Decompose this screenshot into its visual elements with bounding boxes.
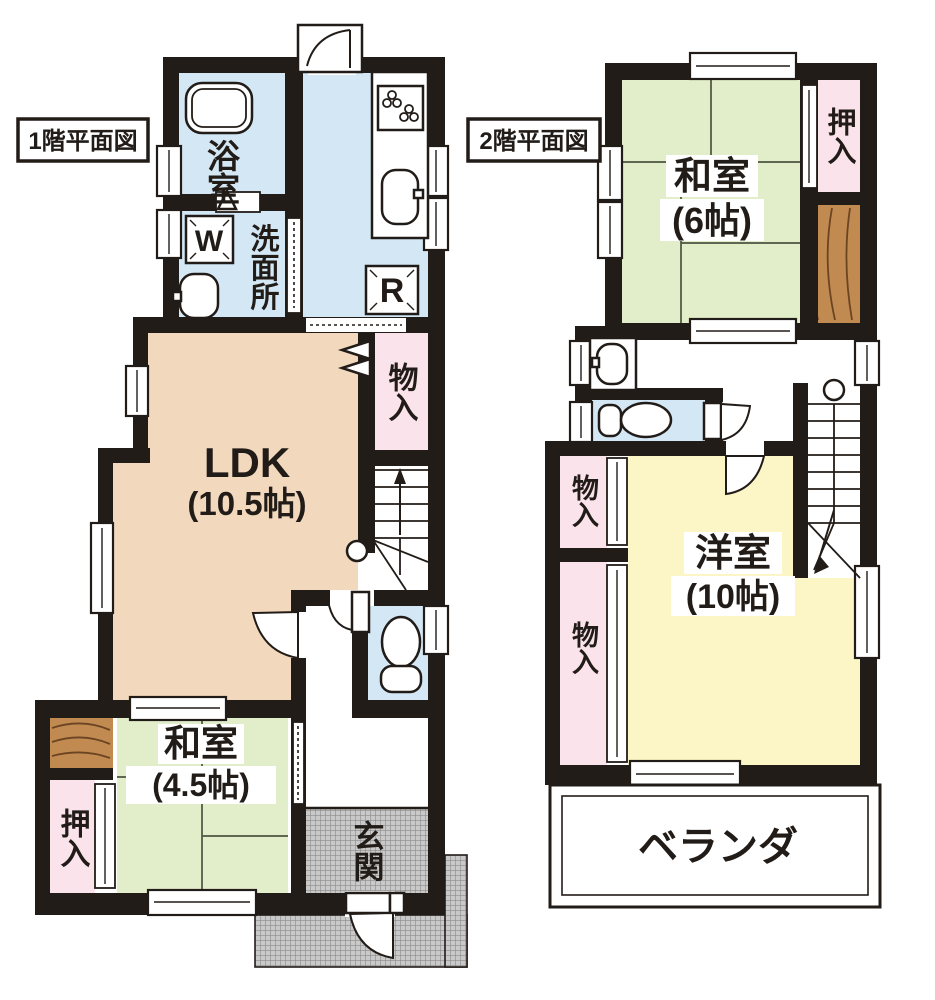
label-oshiire-1f: 押入: [56, 808, 91, 868]
bathtub-icon: [186, 83, 252, 133]
toilet-door-2f: [704, 403, 721, 439]
label-washitsu-1f: 和室: [164, 722, 238, 764]
label-storage-1f: 物入: [384, 362, 419, 422]
label-ldk-size: (10.5帖): [187, 485, 306, 522]
stairs-2f: [808, 380, 860, 578]
label-veranda: ベランダ: [638, 825, 798, 869]
toilet-icon-1f: [381, 617, 421, 692]
floor2-plan: 2階平面図 和室 (6帖) 押入 物入 物入 洋室 (10帖) ベランダ: [468, 53, 880, 907]
toilet-icon-2f: [599, 403, 671, 437]
label-oshiire-2f: 押入: [823, 107, 857, 165]
label-washitsu-1f-size: (4.5帖): [152, 767, 250, 803]
washbasin-2f: [590, 338, 636, 390]
label-youshitsu: 洋室: [695, 532, 771, 575]
label-washroom: 洗面所: [246, 223, 280, 311]
front-door: [346, 893, 390, 913]
floor2-title: 2階平面図: [479, 128, 588, 155]
label-genkan: 玄関: [349, 820, 384, 882]
label-youshitsu-size: (10帖): [686, 578, 780, 616]
floorplan-page: 1階平面図 浴室 洗面所 W R LDK (10.5帖) 物入 和室 (4.5帖…: [0, 0, 935, 1000]
floorplan-canvas: 1階平面図 浴室 洗面所 W R LDK (10.5帖) 物入 和室 (4.5帖…: [0, 0, 935, 1000]
label-storage-2f-lower: 物入: [568, 621, 599, 675]
label-ldk: LDK: [204, 439, 290, 486]
label-washitsu-2f-size: (6帖): [672, 200, 752, 241]
porch-side: [445, 855, 467, 967]
sink-icon: [382, 170, 418, 224]
floor1-plan: 1階平面図 浴室 洗面所 W R LDK (10.5帖) 物入 和室 (4.5帖…: [18, 25, 467, 967]
label-bathroom: 浴室: [203, 139, 241, 205]
label-storage-2f-upper: 物入: [568, 474, 599, 528]
label-washitsu-2f: 和室: [674, 155, 750, 198]
stove-icon: [378, 86, 423, 130]
floor1-title: 1階平面図: [28, 128, 137, 155]
toilet-door-1f: [352, 592, 369, 632]
label-washer: W: [195, 225, 224, 258]
label-fridge: R: [380, 272, 405, 310]
